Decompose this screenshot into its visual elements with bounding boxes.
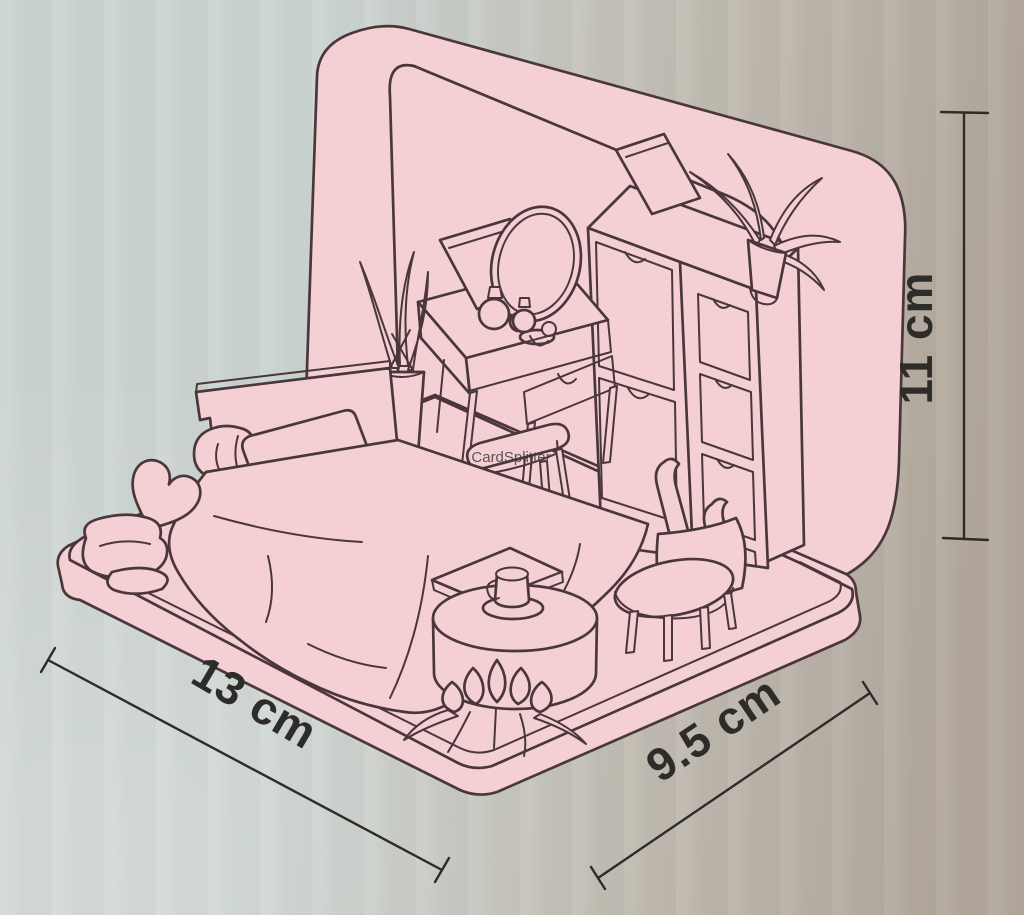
tin-box-roombox-drawing: 13 cm 9.5 cm 11 cm CardSplitter	[0, 0, 1024, 915]
slipper	[107, 568, 167, 594]
dimension-height-line	[941, 112, 988, 540]
chair-leg	[700, 607, 710, 649]
product-dimension-diagram: 13 cm 9.5 cm 11 cm CardSplitter	[0, 0, 1024, 915]
wardrobe-cabinet	[588, 186, 804, 568]
chair-leg	[664, 615, 672, 661]
dimension-height: 11 cm	[890, 112, 988, 540]
watermark-text: CardSplitter	[471, 449, 550, 466]
dimension-height-label: 11 cm	[890, 272, 942, 405]
